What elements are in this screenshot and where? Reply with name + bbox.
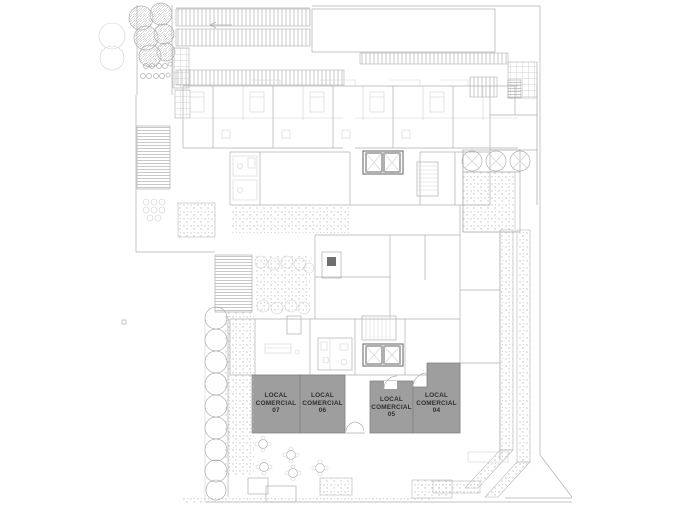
label-line: LOCAL xyxy=(300,392,345,400)
garden-strip-left xyxy=(205,307,254,500)
building-mid-band xyxy=(230,151,490,205)
courtyard-right xyxy=(462,150,530,232)
furniture xyxy=(190,92,444,138)
label-line: COMERCIAL xyxy=(252,400,300,408)
label-local-comercial-04: LOCAL COMERCIAL 04 xyxy=(413,392,460,415)
cafe-tables xyxy=(255,436,328,481)
gravel-patch-left xyxy=(178,203,215,237)
label-line: COMERCIAL xyxy=(300,400,345,408)
floor-plan-drawing xyxy=(0,0,680,510)
building-lower-band xyxy=(230,316,460,375)
fire-hearth xyxy=(327,257,336,266)
building-upper-band xyxy=(183,80,518,148)
label-line: 05 xyxy=(370,411,413,419)
label-line: LOCAL xyxy=(370,396,413,404)
label-local-comercial-06: LOCAL COMERCIAL 06 xyxy=(300,392,345,415)
elevator-core-upper xyxy=(363,151,403,174)
floor-plan: LOCAL COMERCIAL 07 LOCAL COMERCIAL 06 LO… xyxy=(0,0,680,510)
parking-area xyxy=(176,9,508,97)
stair-lower xyxy=(362,316,396,340)
elevator-core-lower xyxy=(363,344,403,366)
planting-strip-mid xyxy=(230,207,350,233)
planters-benches xyxy=(248,452,508,502)
ramp-grid-block xyxy=(508,62,537,98)
sidewalk-bottom xyxy=(183,496,434,503)
label-line: LOCAL xyxy=(413,392,460,400)
label-line: COMERCIAL xyxy=(370,404,413,412)
label-line: COMERCIAL xyxy=(413,400,460,408)
label-line: 07 xyxy=(252,407,300,415)
label-line: 04 xyxy=(413,407,460,415)
marker-dot xyxy=(122,320,126,324)
vacant-lot xyxy=(312,9,495,52)
loungers xyxy=(143,199,165,221)
label-line: LOCAL xyxy=(252,392,300,400)
label-local-comercial-07: LOCAL COMERCIAL 07 xyxy=(252,392,300,415)
pool xyxy=(137,126,170,189)
pool-terrace xyxy=(122,95,215,324)
trellis-strip-2 xyxy=(175,90,190,118)
label-local-comercial-05: LOCAL COMERCIAL 05 xyxy=(370,396,413,419)
main-entrance-doors xyxy=(345,422,365,433)
wood-deck xyxy=(215,255,252,312)
label-line: 06 xyxy=(300,407,345,415)
